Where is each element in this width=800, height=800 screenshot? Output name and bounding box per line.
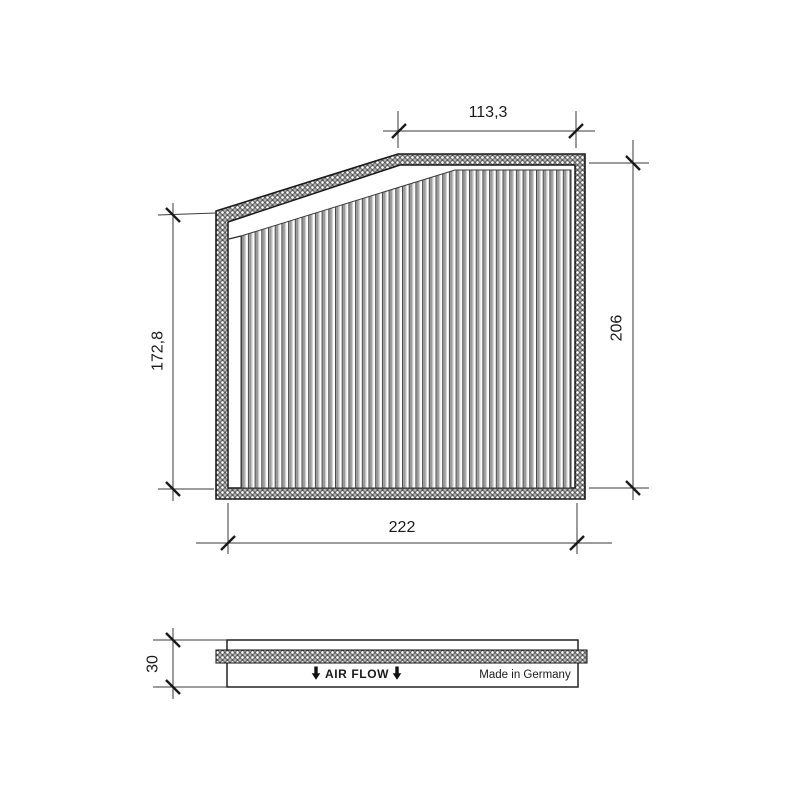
dim-top-width-value: 113,3 <box>469 104 508 121</box>
dim-thickness-value: 30 <box>145 655 162 673</box>
air-flow-label: AIR FLOW <box>325 667 389 681</box>
technical-drawing-canvas: 113,3 172,8 206 222 AIR FLOW Made in Ger… <box>0 0 800 800</box>
filter-front-view <box>216 154 585 499</box>
dim-left-height-value: 172,8 <box>150 331 167 371</box>
technical-drawing-page: 113,3 172,8 206 222 AIR FLOW Made in Ger… <box>0 0 800 800</box>
dim-right-height-value: 206 <box>609 315 626 342</box>
side-view-media-band <box>216 650 587 663</box>
made-in-germany-label: Made in Germany <box>479 669 571 681</box>
filter-side-view: AIR FLOW Made in Germany <box>216 640 587 687</box>
dim-bottom-width-value: 222 <box>389 519 416 536</box>
